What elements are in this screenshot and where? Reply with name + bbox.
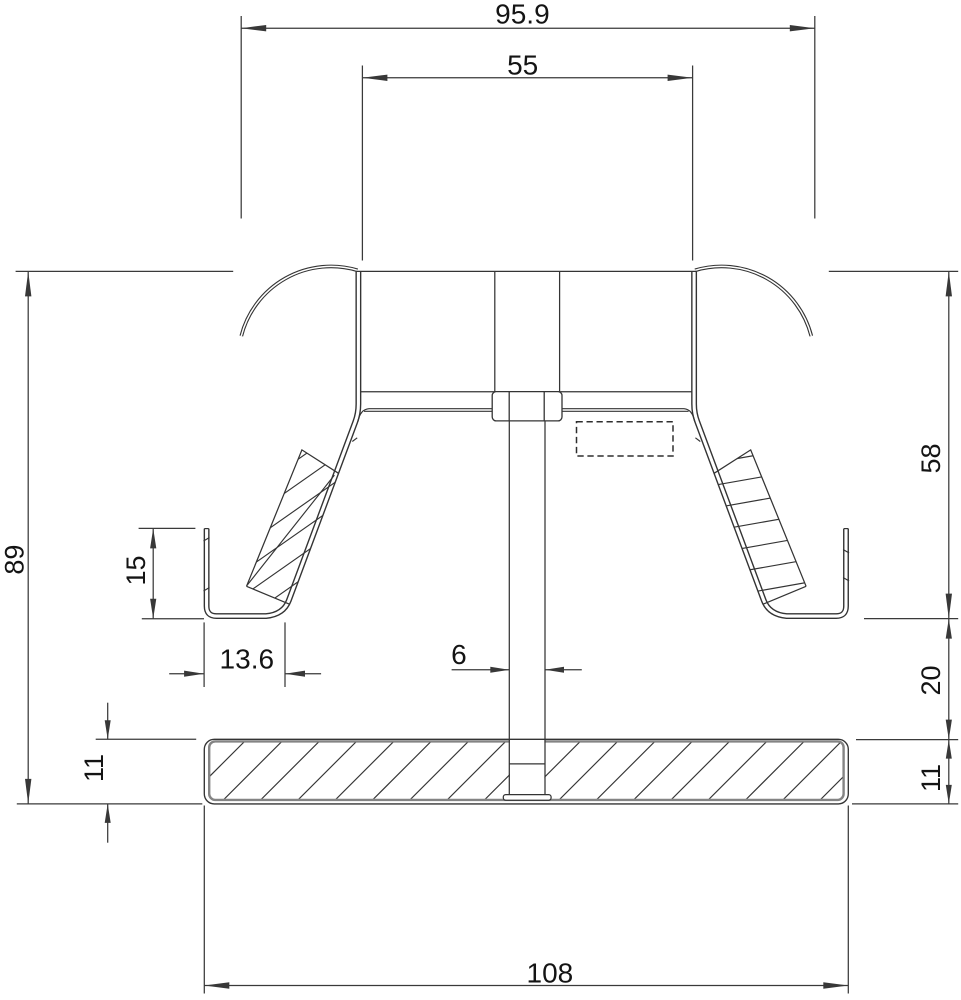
svg-text:89: 89 (0, 545, 30, 575)
svg-text:6: 6 (451, 639, 467, 670)
svg-text:58: 58 (916, 443, 946, 473)
svg-text:15: 15 (121, 555, 151, 585)
svg-text:20: 20 (916, 665, 946, 695)
svg-text:11: 11 (79, 754, 109, 782)
svg-text:11: 11 (916, 764, 946, 792)
svg-text:13.6: 13.6 (220, 643, 275, 674)
svg-text:95.9: 95.9 (495, 0, 550, 29)
svg-text:108: 108 (527, 957, 574, 988)
svg-text:55: 55 (507, 49, 538, 80)
